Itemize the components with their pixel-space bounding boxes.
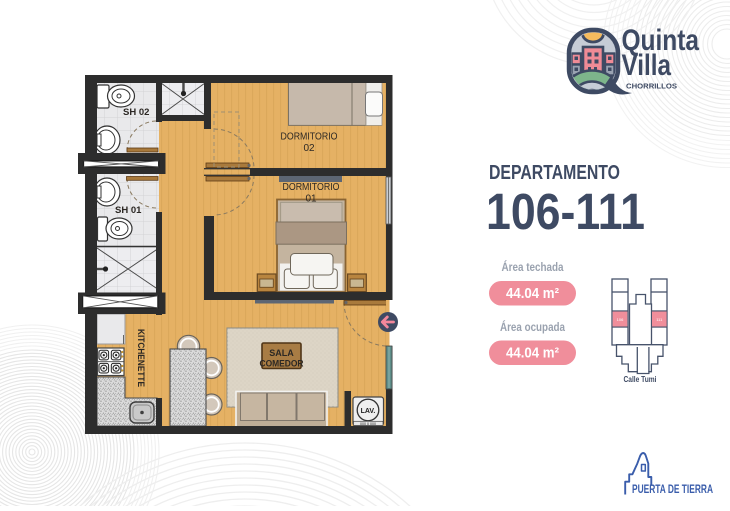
svg-text:111: 111	[656, 317, 663, 322]
svg-text:PUERTA DE TIERRA: PUERTA DE TIERRA	[632, 484, 713, 496]
svg-text:Área ocupada: Área ocupada	[500, 319, 565, 334]
svg-text:Villa: Villa	[622, 49, 672, 82]
svg-text:DORMITORIO: DORMITORIO	[283, 182, 340, 193]
svg-text:DORMITORIO: DORMITORIO	[281, 132, 338, 143]
svg-text:44.04 m²: 44.04 m²	[506, 346, 559, 362]
svg-text:SH 01: SH 01	[115, 205, 142, 216]
svg-text:000 0 000: 000 0 000	[360, 422, 376, 426]
svg-text:CHORRILLOS: CHORRILLOS	[626, 82, 677, 91]
svg-text:01: 01	[305, 194, 317, 205]
svg-text:LAV.: LAV.	[361, 408, 376, 415]
svg-text:Calle Tumi: Calle Tumi	[624, 374, 657, 384]
svg-text:KITCHENETTE: KITCHENETTE	[135, 329, 146, 387]
svg-text:106-111: 106-111	[486, 183, 645, 240]
svg-text:Área techada: Área techada	[502, 259, 564, 274]
svg-text:44.04 m²: 44.04 m²	[506, 286, 559, 302]
svg-text:COMEDOR: COMEDOR	[260, 359, 304, 369]
svg-text:DEPARTAMENTO: DEPARTAMENTO	[489, 161, 620, 184]
svg-text:106: 106	[617, 317, 624, 322]
svg-text:SALA: SALA	[269, 348, 294, 358]
svg-text:SH 02: SH 02	[123, 107, 149, 118]
svg-text:02: 02	[303, 143, 315, 154]
